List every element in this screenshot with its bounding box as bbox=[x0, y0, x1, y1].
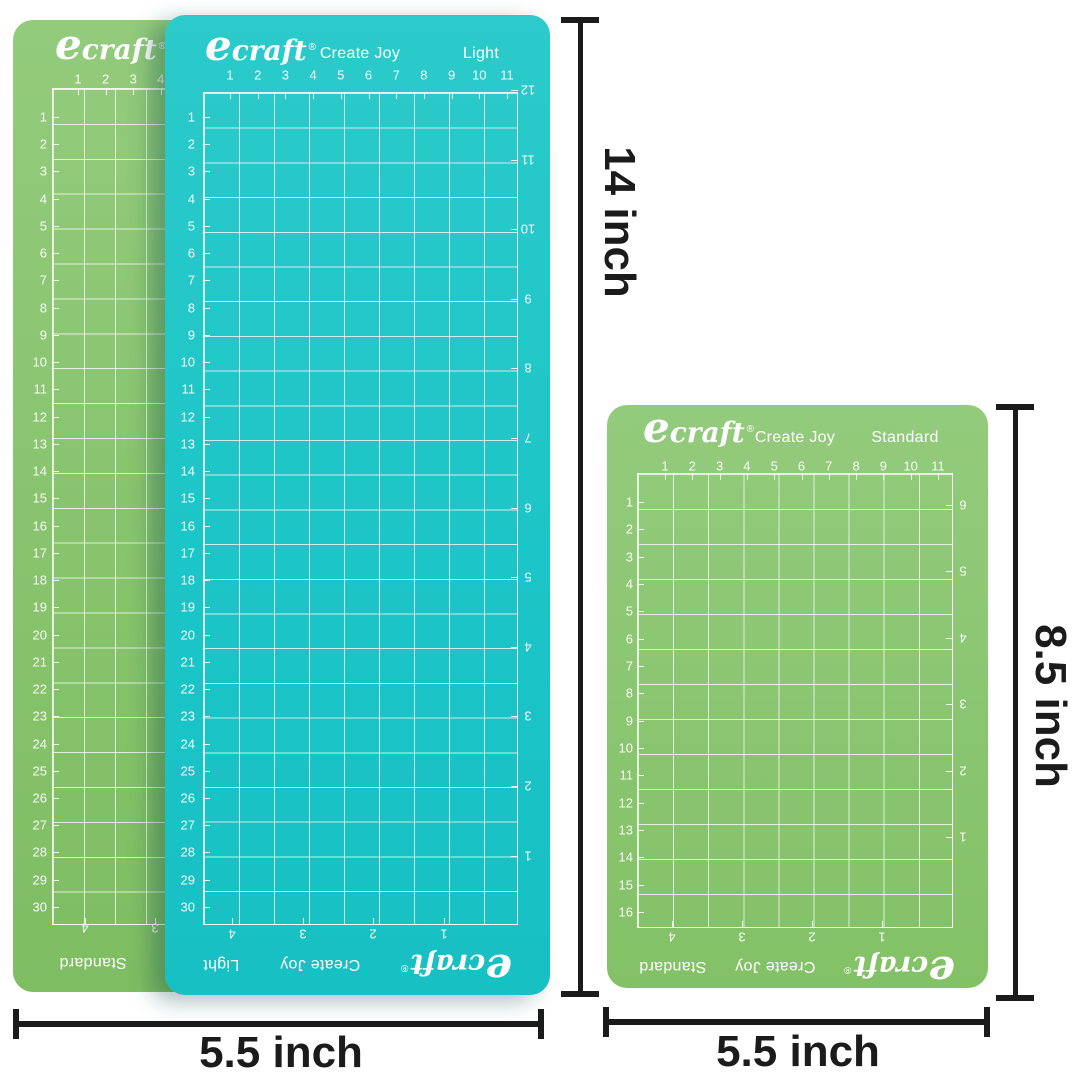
registered-mark: ® bbox=[844, 964, 851, 975]
ruler-number-top: 7 bbox=[825, 459, 832, 474]
ruler-tick bbox=[812, 921, 813, 928]
ruler-number-top: 9 bbox=[880, 459, 887, 474]
ruler-number-left: 7 bbox=[626, 658, 633, 673]
ruler-number-right: 6 bbox=[959, 498, 966, 513]
brand-logo: ecraft® bbox=[205, 37, 316, 65]
ruler-tick bbox=[774, 473, 775, 480]
ruler-tick bbox=[203, 825, 210, 826]
ruler-number-left: 3 bbox=[40, 164, 47, 179]
ruler-tick bbox=[52, 662, 59, 663]
dimension-line-vertical-14in bbox=[578, 20, 583, 997]
ruler-number-left: 7 bbox=[40, 273, 47, 288]
ruler-number-left: 16 bbox=[33, 518, 47, 533]
product-dimension-image: ecraft® Standard 12341234567891011121314… bbox=[0, 0, 1080, 1080]
dimension-line-vertical-8.5in bbox=[1013, 407, 1018, 1000]
ruler-tick bbox=[52, 117, 59, 118]
ruler-number-left: 6 bbox=[626, 631, 633, 646]
ruler-number-right: 11 bbox=[521, 152, 535, 167]
ruler-tick bbox=[203, 308, 210, 309]
ruler-tick bbox=[665, 473, 666, 480]
ruler-number-left: 9 bbox=[626, 713, 633, 728]
ruler-tick bbox=[203, 716, 210, 717]
ruler-number-left: 23 bbox=[33, 709, 47, 724]
dimension-cap bbox=[13, 1009, 19, 1039]
ruler-number-left: 18 bbox=[33, 573, 47, 588]
ruler-number-left: 2 bbox=[626, 522, 633, 537]
ruler-tick bbox=[203, 226, 210, 227]
ruler-number-left: 8 bbox=[188, 300, 195, 315]
ruler-tick bbox=[52, 362, 59, 363]
dimension-label-5.5-inch-right: 5.5 inch bbox=[716, 1027, 880, 1077]
ruler-tick bbox=[637, 721, 644, 722]
ruler-number-left: 10 bbox=[181, 355, 195, 370]
ruler-number-top: 6 bbox=[798, 459, 805, 474]
mat-type-label: Standard bbox=[639, 957, 706, 975]
ruler-tick bbox=[52, 280, 59, 281]
brand-rest: craft bbox=[82, 33, 157, 66]
ruler-number-bottom: 4 bbox=[668, 930, 675, 945]
ruler-number-left: 12 bbox=[33, 409, 47, 424]
ruler-tick bbox=[637, 775, 644, 776]
ruler-number-top: 9 bbox=[448, 68, 455, 83]
ruler-number-top: 11 bbox=[500, 68, 514, 83]
ruler-tick bbox=[637, 611, 644, 612]
ruler-tick bbox=[637, 639, 644, 640]
ruler-number-left: 5 bbox=[626, 604, 633, 619]
ruler-number-left: 13 bbox=[619, 822, 633, 837]
ruler-number-left: 10 bbox=[33, 355, 47, 370]
ruler-number-left: 27 bbox=[181, 818, 195, 833]
ruler-tick bbox=[313, 92, 314, 99]
ruler-tick bbox=[52, 689, 59, 690]
ruler-tick bbox=[511, 786, 518, 787]
ruler-tick bbox=[511, 577, 518, 578]
mat-footer-flipped: ecraft® Create Joy Standard bbox=[639, 943, 955, 989]
ruler-tick bbox=[373, 918, 374, 925]
ruler-tick bbox=[133, 88, 134, 95]
ruler-number-left: 4 bbox=[626, 576, 633, 591]
ruler-number-right: 6 bbox=[524, 500, 531, 515]
ruler-tick bbox=[424, 92, 425, 99]
ruler-tick bbox=[479, 92, 480, 99]
dimension-label-8.5-inch: 8.5 inch bbox=[1025, 624, 1075, 788]
ruler-number-right: 8 bbox=[524, 361, 531, 376]
ruler-tick bbox=[203, 253, 210, 254]
ruler-number-left: 15 bbox=[33, 491, 47, 506]
ruler-tick bbox=[52, 226, 59, 227]
ruler-tick bbox=[511, 299, 518, 300]
dimension-line-horizontal-5.5in-left bbox=[15, 1021, 543, 1027]
ruler-number-top: 3 bbox=[130, 72, 137, 87]
ruler-number-left: 24 bbox=[33, 736, 47, 751]
ruler-tick bbox=[637, 912, 644, 913]
ruler-tick bbox=[507, 92, 508, 99]
ruler-number-left: 14 bbox=[619, 850, 633, 865]
ruler-tick bbox=[52, 253, 59, 254]
ruler-number-top: 1 bbox=[74, 72, 81, 87]
ruler-tick bbox=[203, 280, 210, 281]
ruler-tick bbox=[637, 748, 644, 749]
brand-initial: e bbox=[485, 945, 512, 994]
ruler-number-left: 29 bbox=[181, 872, 195, 887]
ruler-tick bbox=[106, 88, 107, 95]
ruler-number-left: 16 bbox=[619, 904, 633, 919]
ruler-number-left: 23 bbox=[181, 709, 195, 724]
brand-initial: e bbox=[643, 403, 670, 452]
ruler-tick bbox=[637, 803, 644, 804]
ruler-tick bbox=[52, 635, 59, 636]
ruler-tick bbox=[232, 918, 233, 925]
ruler-tick bbox=[882, 921, 883, 928]
dimension-cap bbox=[984, 1007, 990, 1037]
ruler-number-left: 8 bbox=[40, 300, 47, 315]
ruler-tick bbox=[52, 444, 59, 445]
ruler-number-left: 12 bbox=[181, 409, 195, 424]
ruler-number-left: 11 bbox=[620, 768, 634, 783]
brand-logo: ecraft® bbox=[401, 950, 512, 978]
ruler-number-right: 9 bbox=[524, 291, 531, 306]
ruler-number-left: 30 bbox=[33, 899, 47, 914]
ruler-number-left: 15 bbox=[181, 491, 195, 506]
ruler-number-right: 3 bbox=[524, 709, 531, 724]
ruler-tick bbox=[203, 662, 210, 663]
ruler-tick bbox=[637, 502, 644, 503]
ruler-number-left: 15 bbox=[619, 877, 633, 892]
brand-initial: e bbox=[928, 947, 955, 996]
ruler-number-left: 6 bbox=[188, 246, 195, 261]
ruler-tick bbox=[883, 473, 884, 480]
ruler-number-left: 25 bbox=[33, 763, 47, 778]
ruler-number-top: 4 bbox=[157, 72, 164, 87]
dimension-cap bbox=[603, 1007, 609, 1037]
ruler-number-left: 8 bbox=[626, 686, 633, 701]
ruler-number-bottom: 1 bbox=[878, 930, 885, 945]
ruler-tick bbox=[52, 144, 59, 145]
ruler-number-left: 20 bbox=[181, 627, 195, 642]
ruler-number-left: 10 bbox=[619, 740, 633, 755]
ruler-number-left: 29 bbox=[33, 872, 47, 887]
ruler-number-left: 9 bbox=[188, 327, 195, 342]
ruler-tick bbox=[203, 607, 210, 608]
ruler-tick bbox=[637, 857, 644, 858]
ruler-number-right: 2 bbox=[524, 779, 531, 794]
ruler-tick bbox=[52, 389, 59, 390]
ruler-tick bbox=[747, 473, 748, 480]
ruler-number-top: 2 bbox=[689, 459, 696, 474]
ruler-tick bbox=[285, 92, 286, 99]
ruler-tick bbox=[742, 921, 743, 928]
ruler-number-top: 7 bbox=[393, 68, 400, 83]
ruler-number-left: 17 bbox=[33, 545, 47, 560]
ruler-number-bottom: 4 bbox=[228, 927, 235, 942]
ruler-tick bbox=[637, 557, 644, 558]
brand-initial: e bbox=[205, 21, 232, 70]
ruler-tick bbox=[303, 918, 304, 925]
ruler-number-top: 4 bbox=[743, 459, 750, 474]
ruler-tick bbox=[203, 744, 210, 745]
ruler-number-left: 3 bbox=[188, 164, 195, 179]
ruler-number-left: 28 bbox=[33, 845, 47, 860]
ruler-number-top: 11 bbox=[931, 459, 945, 474]
ruler-number-top: 2 bbox=[254, 68, 261, 83]
brand-rest: craft bbox=[410, 948, 485, 981]
ruler-tick bbox=[802, 473, 803, 480]
ruler-tick bbox=[911, 473, 912, 480]
ruler-tick bbox=[511, 438, 518, 439]
tagline: Create Joy bbox=[280, 955, 360, 973]
ruler-number-bottom: 2 bbox=[808, 930, 815, 945]
cutting-grid bbox=[637, 473, 953, 928]
ruler-number-right: 7 bbox=[524, 431, 531, 446]
ruler-tick bbox=[444, 918, 445, 925]
ruler-tick bbox=[258, 92, 259, 99]
ruler-tick bbox=[637, 693, 644, 694]
ruler-tick bbox=[511, 856, 518, 857]
ruler-number-left: 3 bbox=[626, 549, 633, 564]
ruler-number-left: 24 bbox=[181, 736, 195, 751]
ruler-tick bbox=[637, 885, 644, 886]
ruler-number-left: 14 bbox=[181, 464, 195, 479]
ruler-tick bbox=[85, 918, 86, 925]
ruler-tick bbox=[52, 308, 59, 309]
ruler-number-top: 5 bbox=[337, 68, 344, 83]
tagline: Create Joy bbox=[320, 45, 400, 63]
ruler-tick bbox=[203, 771, 210, 772]
ruler-tick bbox=[672, 921, 673, 928]
ruler-number-left: 17 bbox=[181, 545, 195, 560]
ruler-tick bbox=[52, 580, 59, 581]
ruler-number-top: 5 bbox=[771, 459, 778, 474]
ruler-number-top: 8 bbox=[852, 459, 859, 474]
ruler-number-right: 5 bbox=[959, 564, 966, 579]
ruler-tick bbox=[52, 498, 59, 499]
ruler-number-left: 4 bbox=[40, 191, 47, 206]
ruler-number-left: 26 bbox=[181, 791, 195, 806]
dimension-cap bbox=[561, 991, 599, 997]
ruler-tick bbox=[637, 666, 644, 667]
ruler-number-left: 9 bbox=[40, 327, 47, 342]
ruler-tick bbox=[52, 880, 59, 881]
ruler-tick bbox=[52, 471, 59, 472]
dimension-line-horizontal-5.5in-right bbox=[605, 1019, 990, 1025]
dimension-cap bbox=[996, 404, 1034, 410]
ruler-tick bbox=[829, 473, 830, 480]
ruler-number-left: 18 bbox=[181, 573, 195, 588]
ruler-tick bbox=[230, 92, 231, 99]
ruler-tick bbox=[511, 160, 518, 161]
ruler-number-left: 13 bbox=[33, 436, 47, 451]
ruler-number-left: 6 bbox=[40, 246, 47, 261]
ruler-tick bbox=[946, 638, 953, 639]
ruler-number-right: 3 bbox=[959, 697, 966, 712]
brand-logo: ecraft® bbox=[844, 952, 955, 980]
ruler-tick bbox=[52, 335, 59, 336]
ruler-tick bbox=[203, 880, 210, 881]
ruler-tick bbox=[511, 368, 518, 369]
ruler-tick bbox=[203, 526, 210, 527]
ruler-tick bbox=[637, 830, 644, 831]
registered-mark: ® bbox=[401, 962, 408, 973]
ruler-number-bottom: 3 bbox=[738, 930, 745, 945]
brand-logo: ecraft® bbox=[643, 419, 754, 447]
ruler-tick bbox=[203, 852, 210, 853]
ruler-number-left: 16 bbox=[181, 518, 195, 533]
ruler-number-left: 2 bbox=[188, 137, 195, 152]
ruler-tick bbox=[396, 92, 397, 99]
ruler-tick bbox=[52, 171, 59, 172]
ruler-tick bbox=[203, 417, 210, 418]
ruler-tick bbox=[203, 635, 210, 636]
registered-mark: ® bbox=[309, 42, 316, 53]
mat-type-label: Light bbox=[203, 955, 239, 973]
ruler-number-left: 11 bbox=[34, 382, 48, 397]
ruler-tick bbox=[52, 771, 59, 772]
ruler-number-left: 21 bbox=[33, 654, 47, 669]
ruler-number-right: 4 bbox=[524, 639, 531, 654]
ruler-number-left: 7 bbox=[188, 273, 195, 288]
ruler-tick bbox=[637, 584, 644, 585]
ruler-number-left: 1 bbox=[626, 495, 633, 510]
ruler-tick bbox=[203, 471, 210, 472]
ruler-tick bbox=[946, 837, 953, 838]
dimension-cap bbox=[996, 995, 1034, 1001]
registered-mark: ® bbox=[747, 424, 754, 435]
ruler-tick bbox=[720, 473, 721, 480]
ruler-number-left: 13 bbox=[181, 436, 195, 451]
ruler-number-right: 4 bbox=[959, 630, 966, 645]
ruler-number-left: 25 bbox=[181, 763, 195, 778]
ruler-tick bbox=[946, 704, 953, 705]
ruler-tick bbox=[856, 473, 857, 480]
ruler-number-right: 1 bbox=[524, 848, 531, 863]
ruler-tick bbox=[946, 771, 953, 772]
ruler-number-right: 10 bbox=[521, 222, 535, 237]
ruler-tick bbox=[161, 88, 162, 95]
ruler-tick bbox=[341, 92, 342, 99]
brand-logo: ecraft® bbox=[55, 36, 166, 64]
ruler-tick bbox=[203, 389, 210, 390]
ruler-number-left: 19 bbox=[33, 600, 47, 615]
ruler-number-bottom: 2 bbox=[369, 927, 376, 942]
ruler-number-top: 1 bbox=[226, 68, 233, 83]
ruler-number-left: 4 bbox=[188, 191, 195, 206]
ruler-tick bbox=[203, 580, 210, 581]
ruler-number-left: 5 bbox=[40, 218, 47, 233]
ruler-number-left: 11 bbox=[182, 382, 196, 397]
cutting-grid bbox=[203, 92, 518, 925]
ruler-number-left: 27 bbox=[33, 818, 47, 833]
ruler-number-left: 1 bbox=[188, 110, 195, 125]
ruler-tick bbox=[52, 744, 59, 745]
ruler-number-left: 22 bbox=[33, 682, 47, 697]
ruler-tick bbox=[52, 199, 59, 200]
dimension-cap bbox=[561, 17, 599, 23]
ruler-tick bbox=[52, 607, 59, 608]
ruler-number-top: 1 bbox=[661, 459, 668, 474]
cutting-mat-teal-light: ecraft® Create Joy Light ecraft® Create … bbox=[165, 15, 550, 995]
ruler-tick bbox=[511, 508, 518, 509]
ruler-number-top: 3 bbox=[716, 459, 723, 474]
brand-rest: craft bbox=[853, 950, 928, 983]
ruler-number-left: 22 bbox=[181, 682, 195, 697]
mat-footer-flipped: ecraft® Create Joy Light bbox=[203, 940, 512, 988]
brand-rest: craft bbox=[232, 34, 307, 67]
ruler-number-left: 21 bbox=[181, 654, 195, 669]
ruler-tick bbox=[511, 716, 518, 717]
mat-type-label-flipped: Standard bbox=[59, 953, 126, 971]
brand-initial: e bbox=[55, 20, 82, 69]
ruler-number-right: 1 bbox=[959, 830, 966, 845]
ruler-number-top: 10 bbox=[903, 459, 917, 474]
ruler-number-left: 26 bbox=[33, 791, 47, 806]
tagline: Create Joy bbox=[755, 429, 835, 447]
ruler-tick bbox=[511, 647, 518, 648]
ruler-tick bbox=[203, 117, 210, 118]
ruler-number-left: 30 bbox=[181, 899, 195, 914]
ruler-tick bbox=[203, 144, 210, 145]
ruler-tick bbox=[203, 498, 210, 499]
ruler-tick bbox=[203, 362, 210, 363]
ruler-tick bbox=[637, 529, 644, 530]
ruler-tick bbox=[938, 473, 939, 480]
ruler-tick bbox=[52, 417, 59, 418]
ruler-number-right: 12 bbox=[521, 83, 535, 98]
ruler-tick bbox=[203, 171, 210, 172]
ruler-number-top: 3 bbox=[282, 68, 289, 83]
ruler-tick bbox=[203, 444, 210, 445]
ruler-tick bbox=[52, 716, 59, 717]
ruler-tick bbox=[946, 571, 953, 572]
ruler-tick bbox=[203, 798, 210, 799]
mat-type-label: Light bbox=[463, 45, 499, 63]
ruler-tick bbox=[946, 505, 953, 506]
ruler-number-left: 28 bbox=[181, 845, 195, 860]
dimension-label-14-inch: 14 inch bbox=[594, 146, 644, 298]
ruler-tick bbox=[511, 90, 518, 91]
ruler-tick bbox=[203, 689, 210, 690]
cutting-mat-green-standard: ecraft® Create Joy Standard ecraft® Crea… bbox=[607, 405, 988, 988]
ruler-tick bbox=[203, 553, 210, 554]
brand-rest: craft bbox=[670, 416, 745, 449]
ruler-number-left: 12 bbox=[619, 795, 633, 810]
ruler-tick bbox=[155, 918, 156, 925]
ruler-number-left: 1 bbox=[40, 110, 47, 125]
ruler-number-left: 2 bbox=[40, 137, 47, 152]
ruler-number-top: 6 bbox=[365, 68, 372, 83]
ruler-tick bbox=[369, 92, 370, 99]
ruler-number-right: 5 bbox=[524, 570, 531, 585]
ruler-tick bbox=[52, 553, 59, 554]
mat-type-label: Standard bbox=[871, 429, 938, 447]
ruler-tick bbox=[203, 907, 210, 908]
ruler-tick bbox=[511, 229, 518, 230]
ruler-tick bbox=[52, 825, 59, 826]
ruler-number-left: 20 bbox=[33, 627, 47, 642]
ruler-tick bbox=[52, 852, 59, 853]
ruler-number-top: 8 bbox=[420, 68, 427, 83]
ruler-number-top: 10 bbox=[472, 68, 486, 83]
dimension-cap bbox=[538, 1009, 544, 1039]
ruler-number-left: 5 bbox=[188, 218, 195, 233]
ruler-tick bbox=[52, 907, 59, 908]
ruler-tick bbox=[52, 798, 59, 799]
ruler-number-top: 2 bbox=[102, 72, 109, 87]
ruler-tick bbox=[692, 473, 693, 480]
tagline: Create Joy bbox=[735, 957, 815, 975]
ruler-number-right: 2 bbox=[959, 763, 966, 778]
ruler-number-left: 19 bbox=[181, 600, 195, 615]
ruler-number-top: 4 bbox=[309, 68, 316, 83]
